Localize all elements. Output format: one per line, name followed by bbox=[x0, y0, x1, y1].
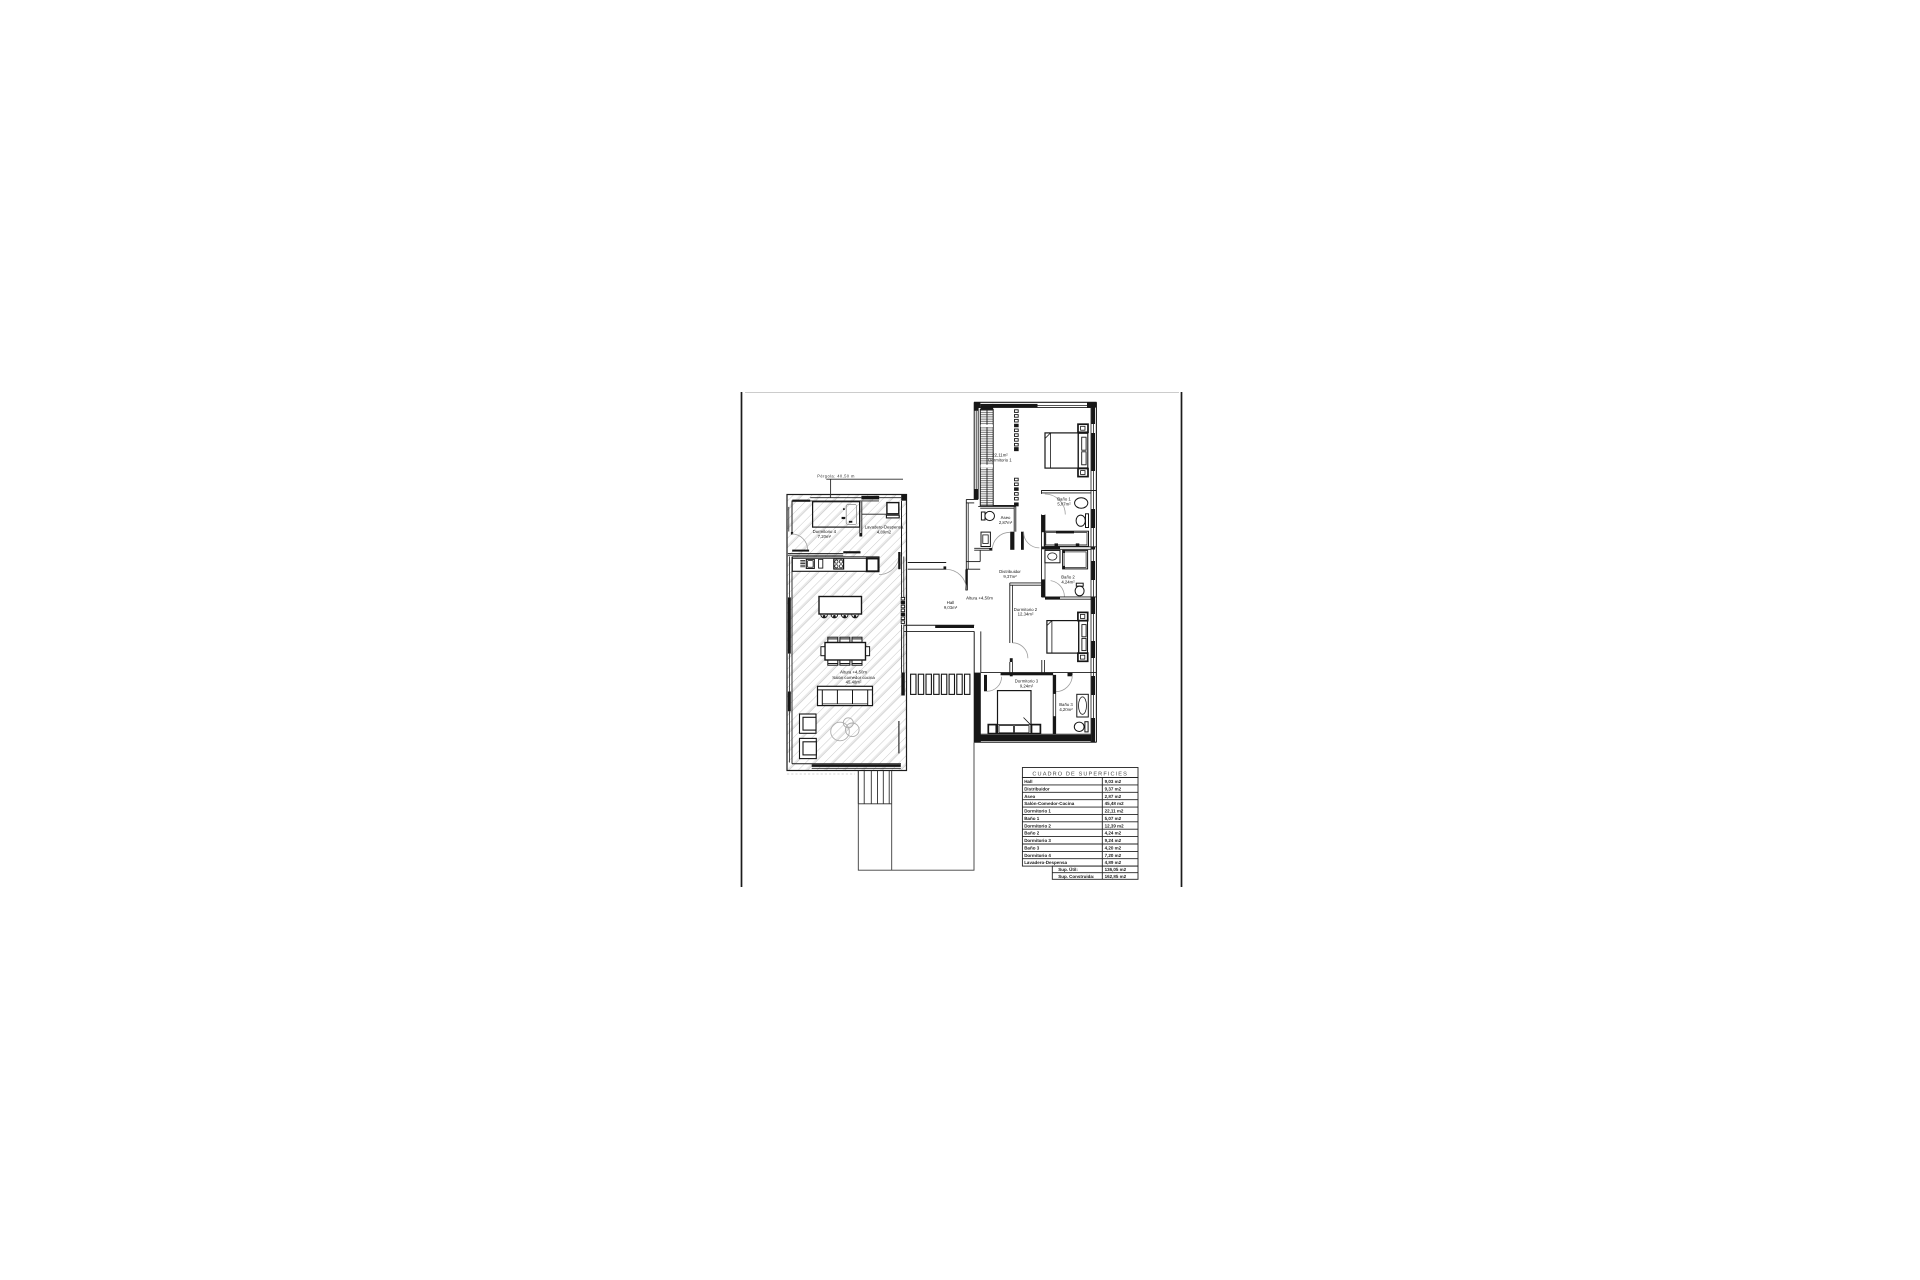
svg-text:5,07m²: 5,07m² bbox=[1057, 501, 1071, 506]
svg-text:7,20m²: 7,20m² bbox=[818, 534, 832, 539]
svg-text:2,87 m2: 2,87 m2 bbox=[1105, 794, 1122, 799]
svg-text:Baño 1: Baño 1 bbox=[1024, 816, 1040, 821]
svg-text:Dormitorio 2: Dormitorio 2 bbox=[1024, 823, 1051, 828]
svg-text:Dormitorio 1: Dormitorio 1 bbox=[988, 458, 1012, 463]
svg-text:12,39 m2: 12,39 m2 bbox=[1105, 823, 1125, 828]
svg-text:9,24m²: 9,24m² bbox=[1020, 684, 1034, 689]
svg-text:Hall: Hall bbox=[1024, 779, 1032, 784]
svg-text:Salón-Comedor-Cocina: Salón-Comedor-Cocina bbox=[1024, 801, 1075, 806]
svg-text:9,24 m2: 9,24 m2 bbox=[1105, 838, 1122, 843]
svg-text:Sup. Útil:: Sup. Útil: bbox=[1058, 867, 1078, 872]
svg-text:Dormitorio 1: Dormitorio 1 bbox=[1024, 809, 1051, 814]
svg-text:4,89m2: 4,89m2 bbox=[877, 530, 892, 535]
svg-text:Baño 3: Baño 3 bbox=[1024, 846, 1040, 851]
svg-text:Lavadero-Despensa: Lavadero-Despensa bbox=[1024, 860, 1067, 865]
svg-text:Sup. Construida:: Sup. Construida: bbox=[1058, 874, 1095, 879]
svg-text:Distribuidor: Distribuidor bbox=[1024, 786, 1050, 791]
svg-text:22,11 m2: 22,11 m2 bbox=[1105, 809, 1124, 814]
svg-text:Dormitorio 3: Dormitorio 3 bbox=[1024, 838, 1051, 843]
svg-text:4,89 m2: 4,89 m2 bbox=[1105, 860, 1122, 865]
svg-text:5,07 m2: 5,07 m2 bbox=[1105, 816, 1122, 821]
svg-text:162,85 m2: 162,85 m2 bbox=[1105, 874, 1127, 879]
svg-text:9,37 m2: 9,37 m2 bbox=[1105, 786, 1122, 791]
svg-text:4,20 m2: 4,20 m2 bbox=[1105, 846, 1122, 851]
svg-text:4,24 m2: 4,24 m2 bbox=[1105, 831, 1122, 836]
svg-text:CUADRO DE SUPERFICIES: CUADRO DE SUPERFICIES bbox=[1032, 771, 1128, 777]
svg-text:9,03m²: 9,03m² bbox=[944, 605, 958, 610]
svg-text:9,37m²: 9,37m² bbox=[1003, 574, 1017, 579]
svg-text:45,48m²: 45,48m² bbox=[846, 680, 862, 685]
svg-text:Aseo: Aseo bbox=[1024, 794, 1035, 799]
svg-text:Dormitorio 4: Dormitorio 4 bbox=[1024, 853, 1051, 858]
svg-text:45,48 m2: 45,48 m2 bbox=[1105, 801, 1125, 806]
svg-text:7,20 m2: 7,20 m2 bbox=[1105, 853, 1122, 858]
svg-text:2,87m²: 2,87m² bbox=[999, 520, 1013, 525]
svg-text:Altura +4,50m: Altura +4,50m bbox=[966, 596, 993, 601]
svg-text:12,34m²: 12,34m² bbox=[1018, 612, 1034, 617]
svg-text:4,20m²: 4,20m² bbox=[1059, 707, 1073, 712]
svg-text:4,24m²: 4,24m² bbox=[1061, 579, 1075, 584]
svg-text:136,05 m2: 136,05 m2 bbox=[1105, 867, 1127, 872]
svg-text:Baño 2: Baño 2 bbox=[1024, 831, 1040, 836]
svg-text:9,03 m2: 9,03 m2 bbox=[1105, 779, 1122, 784]
svg-text:Pérgola: 40,50 m: Pérgola: 40,50 m bbox=[817, 473, 855, 478]
